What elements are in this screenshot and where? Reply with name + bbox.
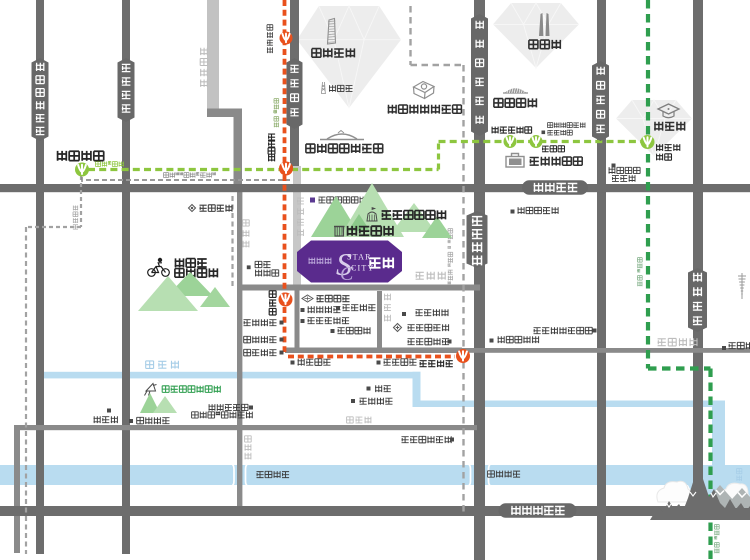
svg-text:STAR: STAR (347, 253, 372, 262)
